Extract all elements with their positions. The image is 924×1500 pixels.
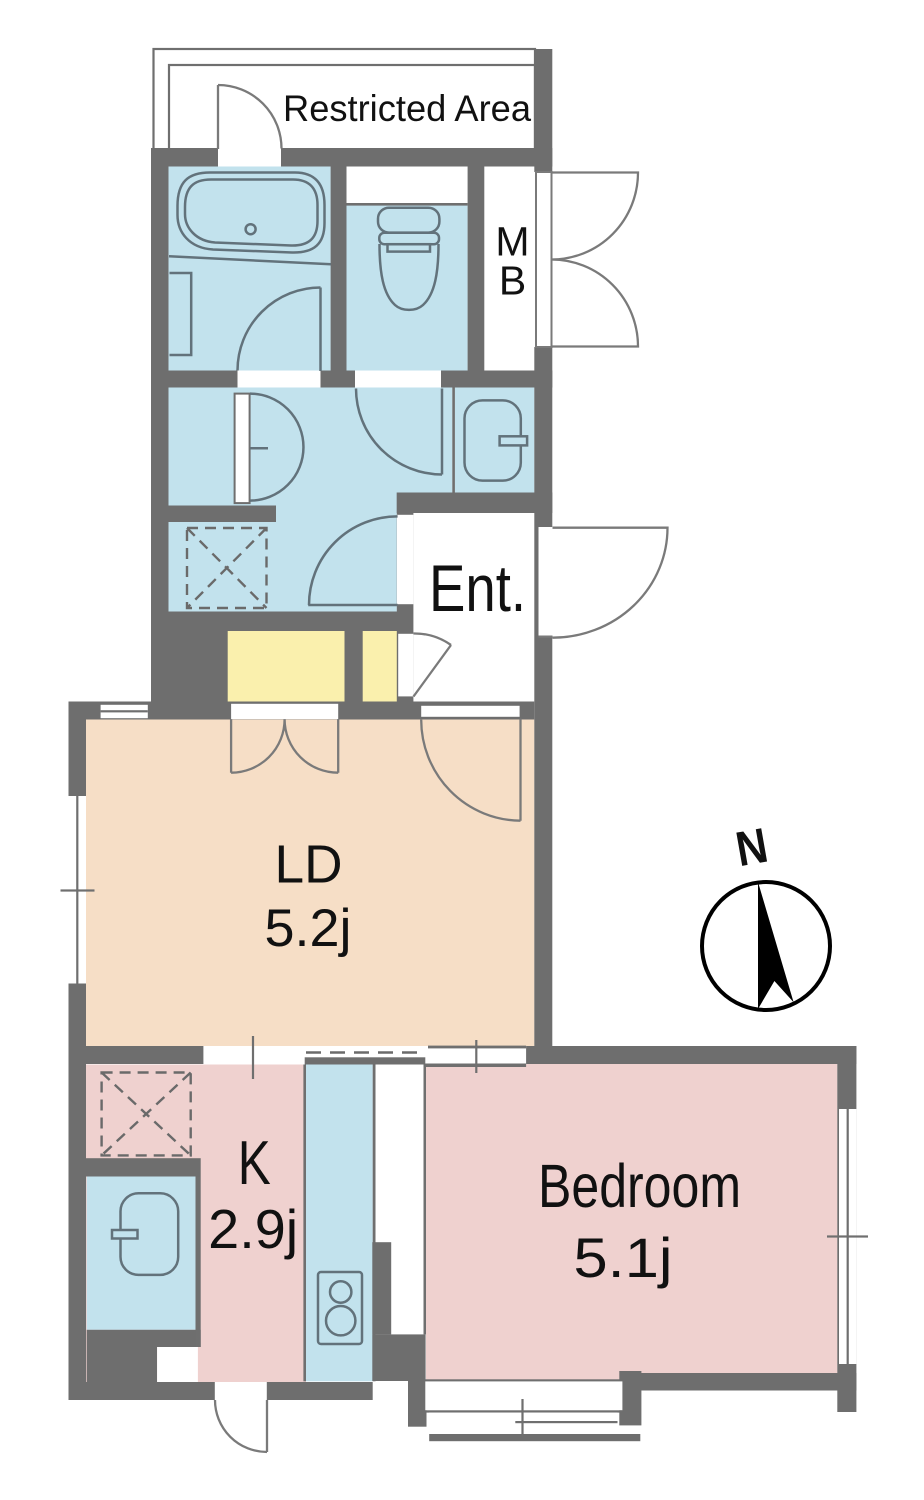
svg-text:K: K — [238, 1129, 271, 1198]
svg-text:LD: LD — [275, 835, 343, 895]
svg-text:B: B — [499, 258, 526, 304]
svg-text:Bedroom: Bedroom — [538, 1152, 741, 1220]
svg-text:Ent.: Ent. — [429, 551, 526, 625]
svg-text:5.2j: 5.2j — [265, 899, 352, 958]
svg-text:5.1j: 5.1j — [574, 1226, 673, 1289]
svg-text:Restricted Area: Restricted Area — [283, 87, 531, 129]
svg-text:2.9j: 2.9j — [208, 1199, 298, 1260]
